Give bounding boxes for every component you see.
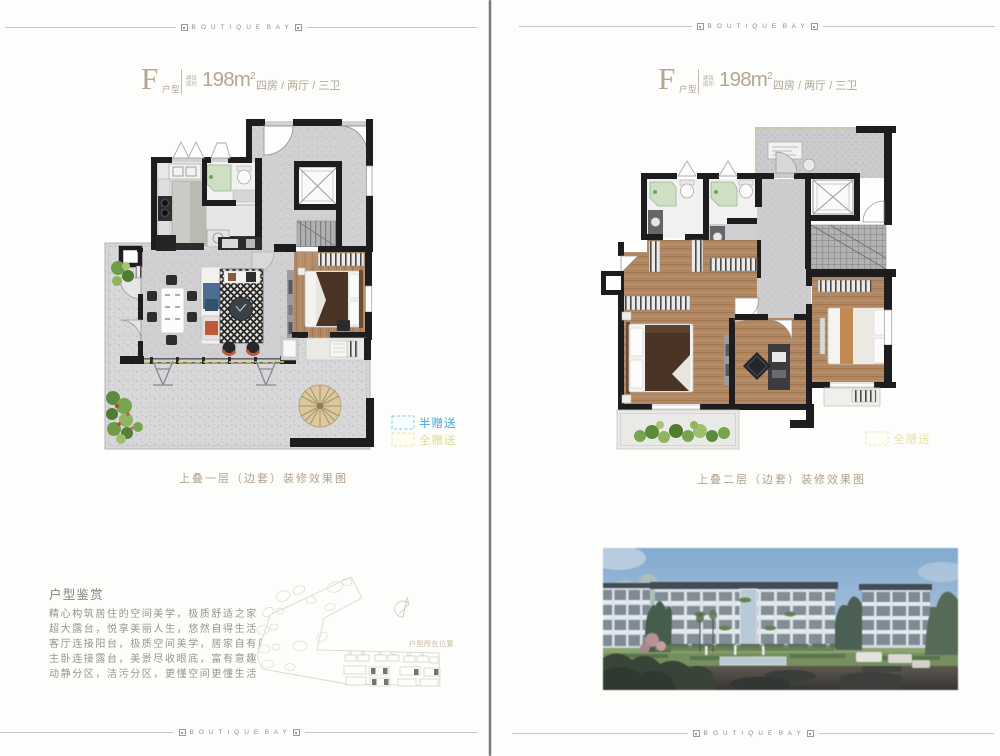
svg-text:半赠送: 半赠送 [419,416,457,430]
svg-text:户型所在位置: 户型所在位置 [409,639,454,648]
svg-text:全赠送: 全赠送 [419,433,457,447]
svg-text:全赠送: 全赠送 [893,432,931,446]
